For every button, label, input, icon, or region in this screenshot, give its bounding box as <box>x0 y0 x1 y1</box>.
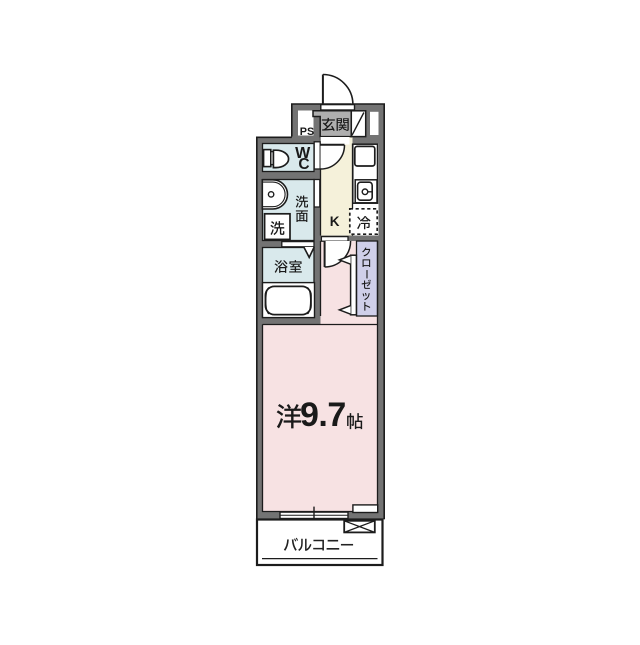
svg-text:PS: PS <box>300 126 314 138</box>
svg-text:C: C <box>298 156 309 173</box>
svg-text:K: K <box>330 214 340 229</box>
svg-text:9.7: 9.7 <box>300 396 346 434</box>
